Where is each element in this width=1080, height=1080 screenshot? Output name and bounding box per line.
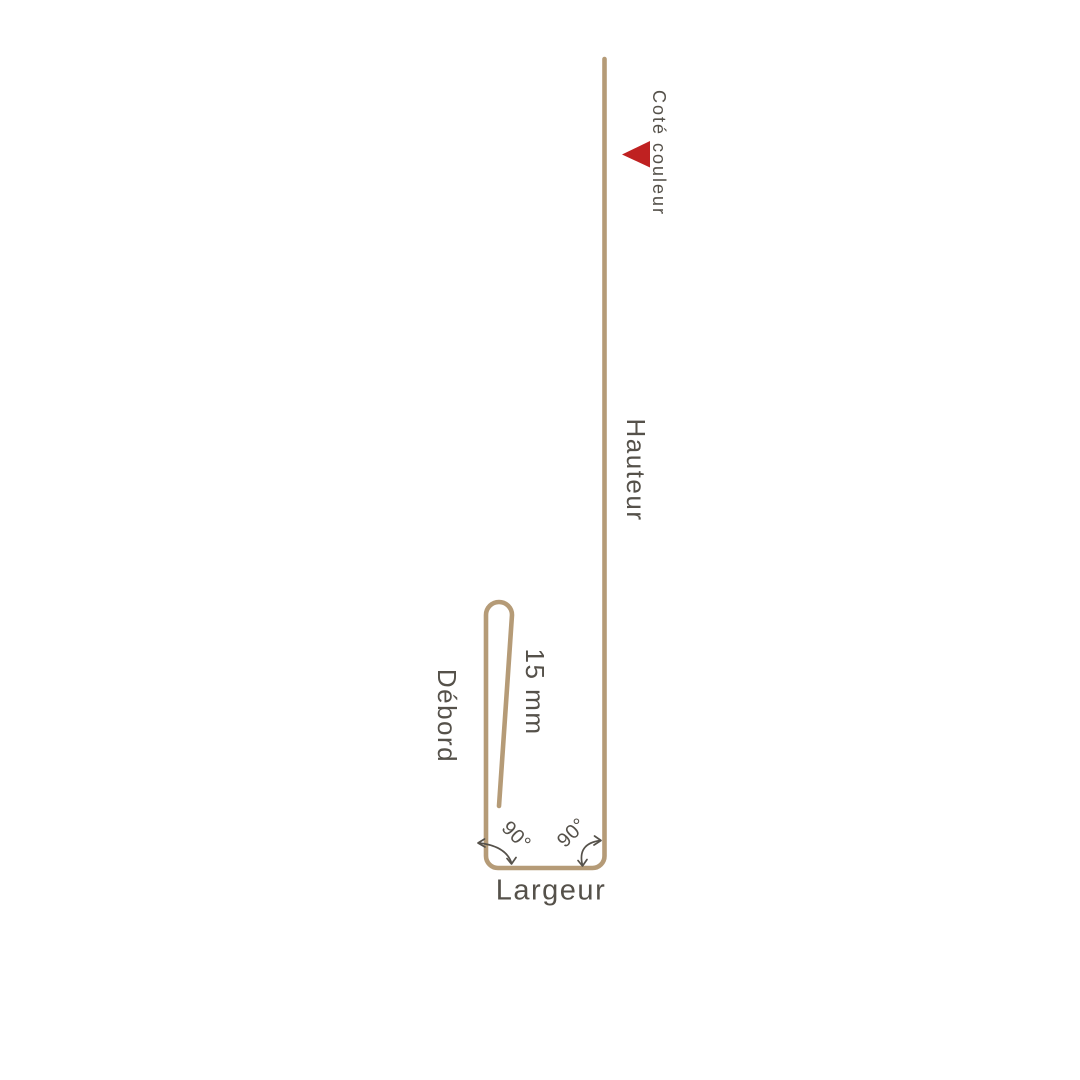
label-overhang: Débord bbox=[434, 669, 460, 763]
label-width: Largeur bbox=[496, 877, 606, 906]
profile-diagram-svg bbox=[0, 0, 1080, 1080]
profile-outline-path bbox=[486, 59, 605, 868]
label-height: Hauteur bbox=[623, 419, 649, 522]
label-hem-dimension: 15 mm bbox=[522, 649, 548, 736]
angle-arc-right bbox=[581, 841, 600, 866]
diagram-canvas: Coté couleur Hauteur 15 mm Débord 90° 90… bbox=[0, 0, 1080, 1080]
label-color-side: Coté couleur bbox=[650, 90, 668, 216]
color-side-marker-icon bbox=[622, 141, 650, 168]
